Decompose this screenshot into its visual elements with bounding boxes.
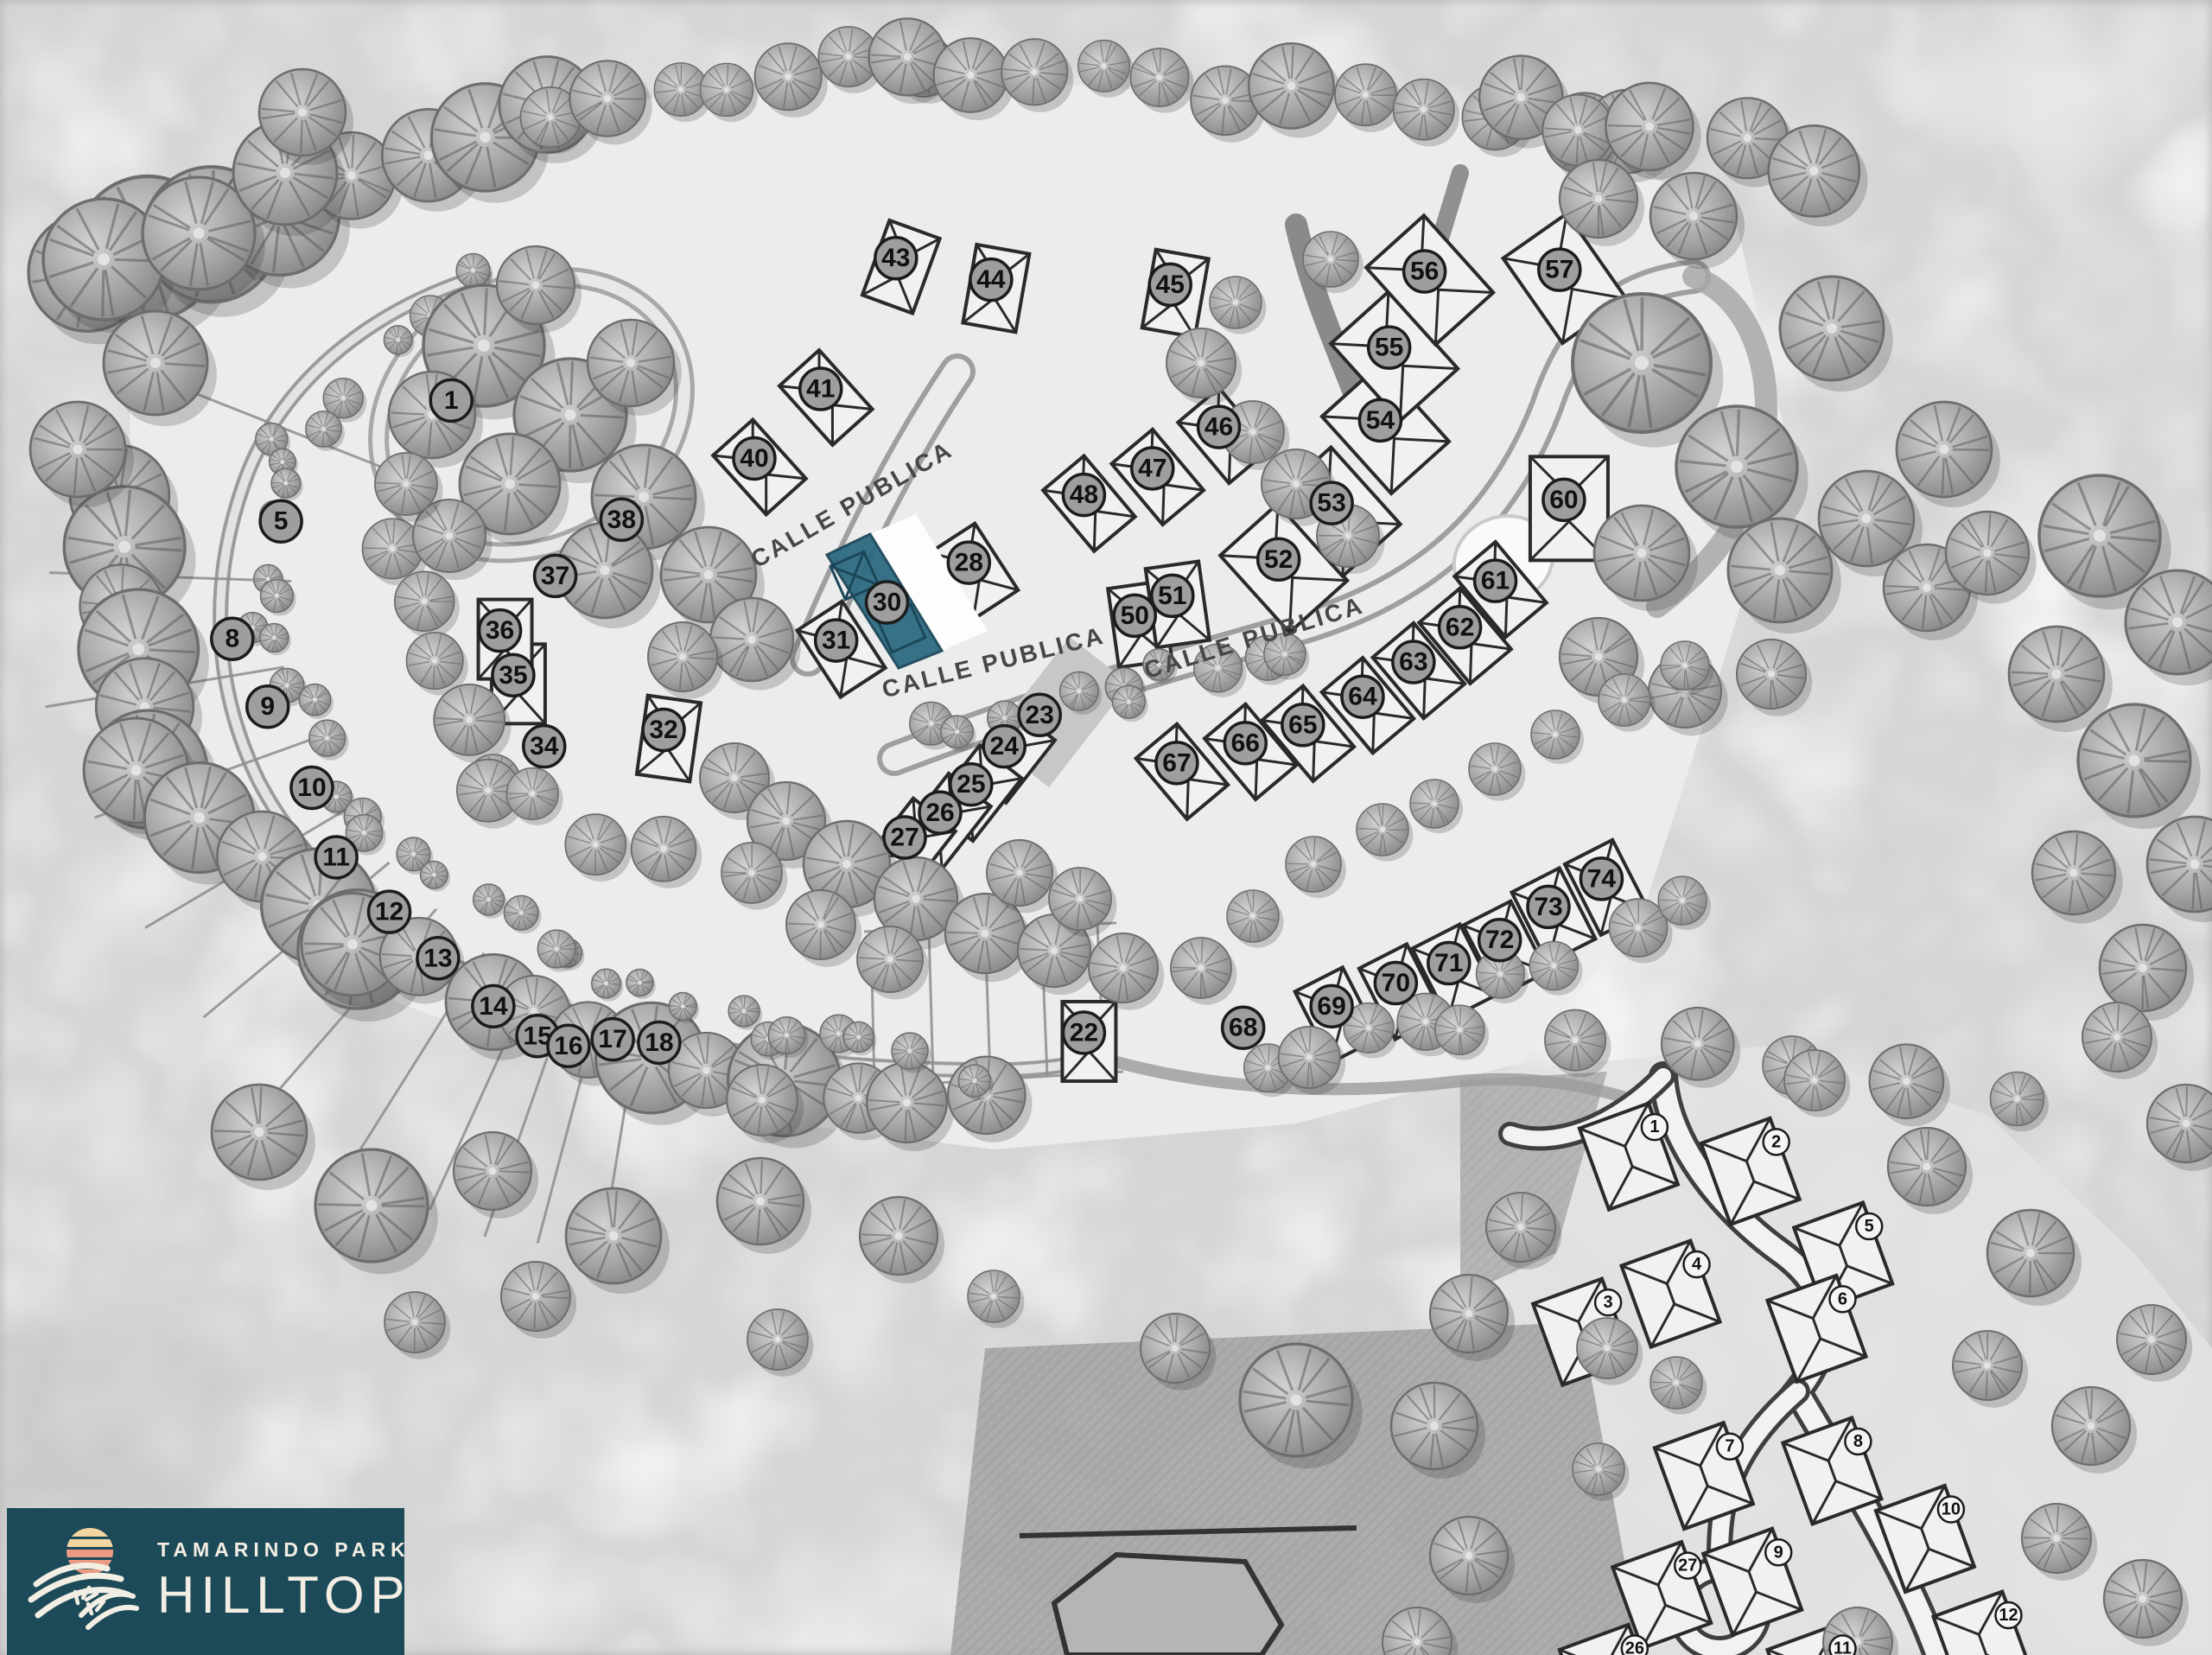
svg-text:73: 73 <box>1534 893 1562 921</box>
svg-text:27: 27 <box>1678 1556 1697 1575</box>
svg-text:67: 67 <box>1162 748 1191 777</box>
lot-marker-63[interactable]: 63 <box>1393 641 1434 683</box>
lot-marker-35[interactable]: 35 <box>493 654 534 696</box>
villa-marker-3[interactable]: 3 <box>1595 1289 1621 1315</box>
villa-marker-12[interactable]: 12 <box>1995 1602 2021 1628</box>
svg-text:36: 36 <box>486 616 514 645</box>
lot-marker-43[interactable]: 43 <box>875 238 917 279</box>
svg-text:5: 5 <box>1865 1217 1874 1236</box>
lot-marker-44[interactable]: 44 <box>970 259 1012 301</box>
svg-text:10: 10 <box>1942 1499 1961 1518</box>
villa-marker-1[interactable]: 1 <box>1642 1114 1668 1140</box>
svg-text:11: 11 <box>1834 1639 1852 1655</box>
svg-text:26: 26 <box>1625 1639 1644 1655</box>
lot-marker-71[interactable]: 71 <box>1428 943 1470 984</box>
lot-marker-65[interactable]: 65 <box>1282 704 1324 746</box>
lot-marker-40[interactable]: 40 <box>734 437 775 479</box>
svg-text:9: 9 <box>1774 1543 1783 1562</box>
svg-text:52: 52 <box>1264 545 1293 574</box>
svg-text:32: 32 <box>649 716 677 744</box>
svg-text:18: 18 <box>645 1028 673 1057</box>
lot-marker-72[interactable]: 72 <box>1479 920 1521 961</box>
lot-marker-64[interactable]: 64 <box>1342 676 1383 717</box>
lot-marker-61[interactable]: 61 <box>1475 560 1516 602</box>
svg-text:17: 17 <box>598 1025 626 1053</box>
lot-marker-57[interactable]: 57 <box>1539 249 1580 290</box>
lot-marker-46[interactable]: 46 <box>1198 406 1240 448</box>
svg-text:28: 28 <box>955 549 983 577</box>
svg-text:71: 71 <box>1434 949 1463 977</box>
lot-marker-36[interactable]: 36 <box>480 610 521 652</box>
svg-text:8: 8 <box>1853 1432 1863 1451</box>
lot-marker-55[interactable]: 55 <box>1369 327 1410 368</box>
lot-marker-47[interactable]: 47 <box>1132 448 1173 489</box>
svg-text:1: 1 <box>1649 1117 1659 1136</box>
lot-marker-66[interactable]: 66 <box>1224 722 1266 764</box>
svg-text:64: 64 <box>1348 683 1377 711</box>
lot-marker-32[interactable]: 32 <box>643 710 684 751</box>
lot-marker-8[interactable]: 8 <box>212 618 253 659</box>
svg-text:12: 12 <box>1999 1606 2018 1625</box>
svg-text:8: 8 <box>225 625 239 653</box>
lot-marker-13[interactable]: 13 <box>417 938 459 979</box>
lot-marker-9[interactable]: 9 <box>247 686 289 728</box>
svg-text:7: 7 <box>1725 1437 1734 1456</box>
lot-marker-74[interactable]: 74 <box>1580 858 1622 900</box>
svg-text:12: 12 <box>375 898 404 926</box>
svg-text:74: 74 <box>1587 864 1617 893</box>
svg-text:27: 27 <box>890 823 918 851</box>
svg-text:3: 3 <box>1604 1293 1613 1312</box>
villa-marker-8[interactable]: 8 <box>1845 1429 1871 1454</box>
svg-text:40: 40 <box>740 444 768 473</box>
lot-marker-56[interactable]: 56 <box>1404 251 1446 292</box>
lot-marker-62[interactable]: 62 <box>1440 607 1481 648</box>
logo-park-name: TAMARINDO PARK <box>157 1538 411 1562</box>
lot-marker-14[interactable]: 14 <box>473 985 514 1027</box>
svg-text:16: 16 <box>554 1032 582 1060</box>
lot-marker-45[interactable]: 45 <box>1149 264 1191 305</box>
lot-marker-24[interactable]: 24 <box>983 726 1025 767</box>
lot-marker-60[interactable]: 60 <box>1543 479 1585 520</box>
lot-marker-18[interactable]: 18 <box>639 1022 680 1063</box>
svg-text:44: 44 <box>976 265 1006 294</box>
lot-marker-68[interactable]: 68 <box>1223 1007 1264 1048</box>
svg-text:26: 26 <box>925 799 954 827</box>
lot-marker-70[interactable]: 70 <box>1375 963 1416 1004</box>
svg-text:6: 6 <box>1838 1289 1847 1308</box>
svg-text:9: 9 <box>260 692 275 721</box>
lot-marker-52[interactable]: 52 <box>1258 538 1300 580</box>
svg-text:69: 69 <box>1317 992 1345 1021</box>
lot-marker-67[interactable]: 67 <box>1156 742 1198 784</box>
logo-plate: TAMARINDO PARK HILLTOP <box>7 1508 404 1655</box>
lot-marker-11[interactable]: 11 <box>315 837 357 878</box>
svg-text:57: 57 <box>1545 256 1573 284</box>
svg-text:60: 60 <box>1549 486 1578 514</box>
lot-marker-51[interactable]: 51 <box>1152 575 1193 616</box>
lot-marker-28[interactable]: 28 <box>948 542 989 583</box>
svg-text:50: 50 <box>1121 602 1149 630</box>
svg-text:46: 46 <box>1205 413 1233 442</box>
svg-text:5: 5 <box>274 507 289 536</box>
svg-text:55: 55 <box>1375 334 1403 362</box>
villa-marker-27[interactable]: 27 <box>1675 1553 1700 1579</box>
svg-text:4: 4 <box>1692 1255 1702 1274</box>
svg-text:68: 68 <box>1229 1014 1257 1042</box>
logo-icon <box>28 1525 140 1638</box>
villa-marker-9[interactable]: 9 <box>1765 1539 1791 1565</box>
villa-marker-7[interactable]: 7 <box>1717 1434 1743 1460</box>
master-plan-map: CALLE PUBLICACALLE PUBLICACALLE PUBLICA … <box>0 0 2212 1655</box>
svg-text:65: 65 <box>1288 710 1317 739</box>
svg-text:1: 1 <box>444 386 459 415</box>
svg-text:11: 11 <box>322 843 350 871</box>
lot-marker-1[interactable]: 1 <box>430 379 472 421</box>
lot-marker-34[interactable]: 34 <box>524 726 565 767</box>
svg-text:70: 70 <box>1382 969 1410 997</box>
svg-text:25: 25 <box>957 770 985 799</box>
svg-text:66: 66 <box>1231 729 1260 757</box>
svg-text:34: 34 <box>530 732 559 761</box>
villa-marker-10[interactable]: 10 <box>1938 1496 1964 1522</box>
villa-marker-5[interactable]: 5 <box>1856 1213 1882 1239</box>
svg-text:31: 31 <box>822 627 850 655</box>
lot-marker-50[interactable]: 50 <box>1114 595 1155 636</box>
svg-text:37: 37 <box>541 562 569 590</box>
svg-text:62: 62 <box>1446 613 1474 641</box>
svg-text:14: 14 <box>479 992 508 1021</box>
svg-text:2: 2 <box>1771 1132 1781 1151</box>
lot-marker-69[interactable]: 69 <box>1311 985 1352 1027</box>
svg-text:22: 22 <box>1070 1018 1098 1047</box>
svg-text:43: 43 <box>881 244 910 272</box>
lot-marker-31[interactable]: 31 <box>816 620 857 661</box>
lot-marker-73[interactable]: 73 <box>1528 886 1569 927</box>
svg-text:63: 63 <box>1399 648 1427 677</box>
svg-text:45: 45 <box>1156 271 1185 299</box>
lot-marker-38[interactable]: 38 <box>601 499 642 540</box>
svg-text:56: 56 <box>1410 258 1439 286</box>
lot-marker-23[interactable]: 23 <box>1019 694 1060 735</box>
villa-marker-26[interactable]: 26 <box>1622 1635 1648 1655</box>
svg-text:54: 54 <box>1366 406 1395 435</box>
svg-text:72: 72 <box>1485 926 1514 954</box>
lot-marker-17[interactable]: 17 <box>592 1019 633 1060</box>
site-plan: CALLE PUBLICACALLE PUBLICACALLE PUBLICA … <box>0 0 2212 1655</box>
logo-project-name: HILLTOP <box>157 1565 411 1625</box>
svg-text:24: 24 <box>990 732 1020 761</box>
hills-icon <box>31 1566 137 1627</box>
svg-text:13: 13 <box>423 944 452 972</box>
lot-marker-54[interactable]: 54 <box>1359 399 1401 441</box>
villa-marker-6[interactable]: 6 <box>1829 1286 1855 1312</box>
lot-marker-12[interactable]: 12 <box>369 891 410 933</box>
lot-marker-30[interactable]: 30 <box>867 582 908 623</box>
lot-marker-37[interactable]: 37 <box>535 555 576 596</box>
villa-marker-11[interactable]: 11 <box>1829 1635 1855 1655</box>
svg-text:35: 35 <box>499 661 527 690</box>
svg-text:23: 23 <box>1026 701 1054 729</box>
svg-text:61: 61 <box>1481 567 1510 595</box>
svg-text:53: 53 <box>1317 489 1345 518</box>
svg-text:10: 10 <box>297 773 326 802</box>
lot-marker-27[interactable]: 27 <box>884 817 925 858</box>
svg-text:51: 51 <box>1158 582 1186 610</box>
lot-marker-10[interactable]: 10 <box>291 767 333 809</box>
lot-marker-16[interactable]: 16 <box>548 1025 589 1066</box>
lot-marker-22[interactable]: 22 <box>1063 1012 1104 1053</box>
svg-text:48: 48 <box>1070 481 1098 509</box>
svg-text:30: 30 <box>873 589 901 617</box>
lot-marker-5[interactable]: 5 <box>260 500 302 542</box>
svg-text:47: 47 <box>1138 454 1166 482</box>
lot-marker-26[interactable]: 26 <box>919 792 961 833</box>
svg-text:38: 38 <box>607 506 636 534</box>
lot-marker-53[interactable]: 53 <box>1311 482 1352 524</box>
lot-marker-48[interactable]: 48 <box>1063 474 1104 516</box>
villa-marker-4[interactable]: 4 <box>1684 1251 1710 1277</box>
svg-text:41: 41 <box>806 375 835 404</box>
lot-marker-41[interactable]: 41 <box>800 368 842 410</box>
villa-marker-2[interactable]: 2 <box>1764 1129 1789 1155</box>
